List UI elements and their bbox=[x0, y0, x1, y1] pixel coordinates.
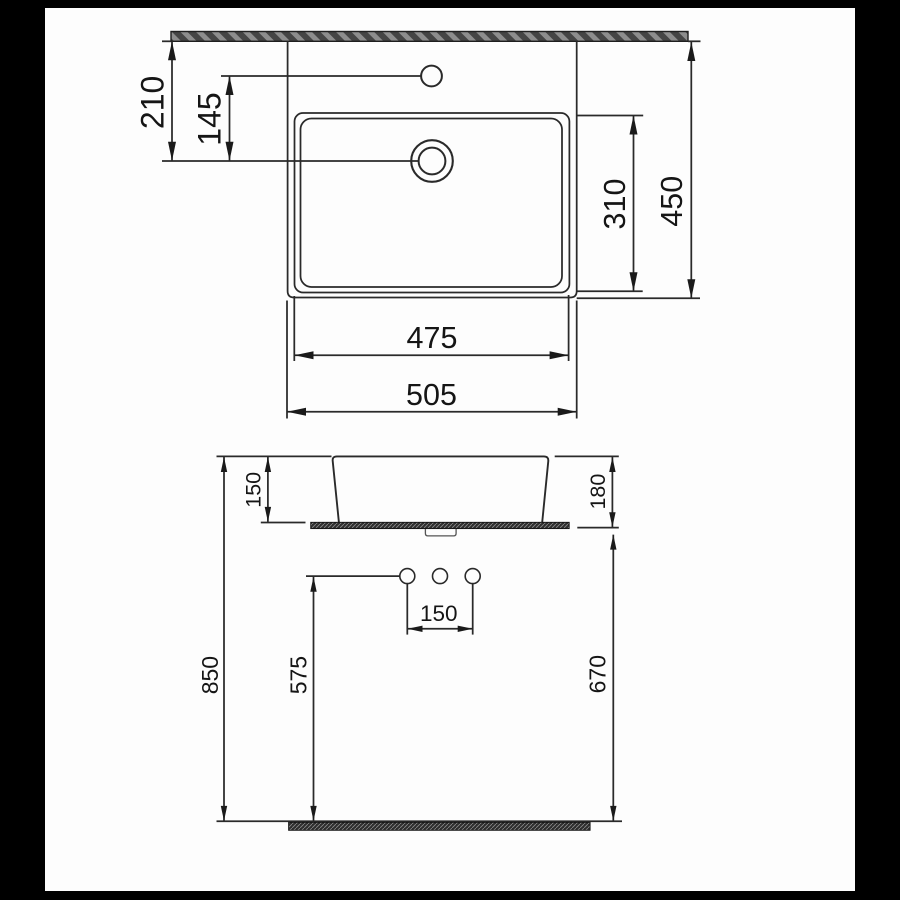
svg-text:150: 150 bbox=[241, 472, 265, 508]
svg-text:850: 850 bbox=[197, 656, 223, 694]
svg-text:505: 505 bbox=[406, 378, 457, 412]
svg-text:145: 145 bbox=[191, 92, 227, 145]
svg-text:150: 150 bbox=[420, 601, 458, 626]
svg-text:210: 210 bbox=[135, 76, 171, 129]
svg-text:575: 575 bbox=[285, 656, 311, 694]
svg-text:180: 180 bbox=[586, 474, 610, 510]
svg-text:670: 670 bbox=[584, 655, 610, 693]
svg-text:475: 475 bbox=[407, 321, 458, 355]
svg-text:310: 310 bbox=[598, 179, 632, 230]
svg-text:450: 450 bbox=[655, 176, 689, 227]
